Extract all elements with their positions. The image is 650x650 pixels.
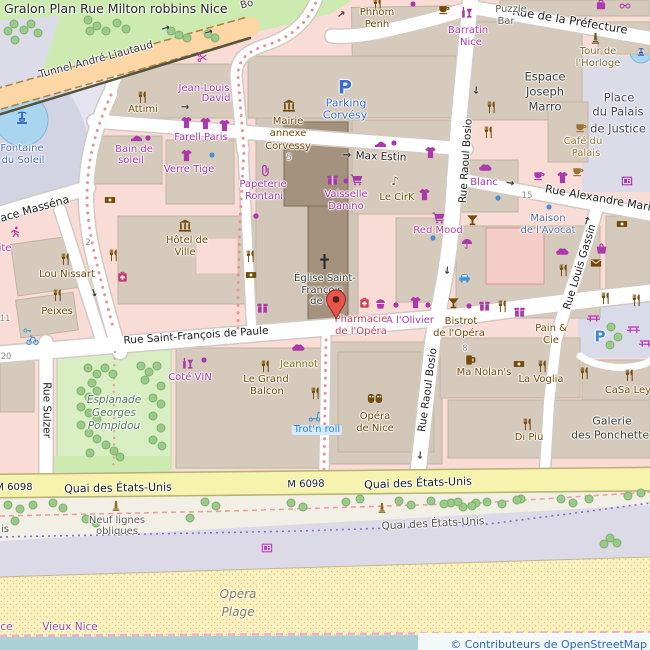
optician-icon: [619, 0, 631, 12]
street-rue-alexandre-mari: Rue Alexandre Mari: [544, 183, 650, 212]
monument-icon: [110, 500, 122, 512]
poi-verre-tige: Verre Tige: [164, 165, 214, 175]
poi-galerie-ponchettes-1: Galerie: [592, 416, 631, 427]
townhall-icon: [178, 219, 192, 233]
dot-icon: [209, 152, 215, 158]
clothes-icon: [424, 146, 437, 159]
osm-attribution-link[interactable]: © Contributeurs de OpenStreetMap: [450, 638, 650, 650]
oneway-arrow-icon: →: [181, 103, 190, 113]
poi-puzzle-bar-2: Bar: [497, 17, 514, 27]
tree-icon: [149, 436, 158, 445]
place-palais-justice-1: Place: [604, 92, 635, 104]
poi-maison-avocat-1: Maison: [530, 214, 565, 224]
poi-bistrot-opera-1: Bistrot: [445, 317, 478, 327]
dot-icon: [410, 1, 416, 7]
poi-trot-n-roll: Trot'n roll: [292, 425, 342, 435]
poi-pharmacie-opera-2: de l'Opéra: [335, 327, 387, 337]
poi-jean-louis-david-2: David: [202, 94, 231, 104]
poi-attimi: Attimi: [128, 105, 158, 115]
tree-icon: [93, 435, 102, 444]
picnic-icon: [587, 312, 600, 325]
place-palais-justice-3: de Justice: [590, 123, 646, 135]
cafe-icon: [533, 169, 546, 182]
tree-icon: [606, 341, 615, 350]
poi-opera-nice-2: de Nice: [356, 424, 394, 434]
clothes-icon: [418, 188, 431, 201]
tree-icon: [86, 27, 95, 36]
poi-parking-corvesy-2: Corvésy: [323, 110, 367, 121]
restaurant-icon: [107, 249, 120, 262]
tree-icon: [16, 505, 25, 514]
tree-icon: [454, 498, 463, 507]
bank-icon: [513, 358, 525, 370]
poi-barratin-nice-2: Nice: [460, 38, 482, 48]
tree-icon: [498, 500, 507, 509]
poi-red-mood: Red Mood: [413, 226, 462, 236]
tree-icon: [585, 495, 594, 504]
cross-icon: [317, 254, 332, 269]
tree-icon: [157, 424, 166, 433]
tree-icon: [86, 449, 95, 458]
poi-la-voglia: La Voglia: [518, 375, 563, 385]
monument-icon: [376, 502, 388, 514]
poi-jeannot: Jeannot: [280, 360, 318, 370]
clothes-icon: [218, 119, 231, 132]
restaurant-icon: [557, 264, 570, 277]
poi-papeterie-rontani-2: Rontani: [245, 192, 283, 202]
artwork-icon: [261, 542, 273, 554]
monument-icon: [589, 32, 602, 45]
park-esplanade-2: Georges: [92, 408, 136, 419]
oneway-arrow-icon: →: [87, 287, 99, 298]
tree-icon: [157, 382, 166, 391]
poi-le-cirk: Le CirK: [379, 193, 414, 203]
poi-parking-corvesy-1: Parking: [326, 98, 367, 109]
tree-icon: [287, 499, 296, 508]
oneway-arrow-icon: →: [505, 178, 515, 189]
tree-icon: [637, 489, 646, 498]
beach-opera-plage-1: Opera: [220, 588, 257, 600]
cafe-icon: [575, 121, 588, 134]
housenumber-5: 5: [286, 154, 291, 163]
housenumber-20: 20: [1, 353, 12, 362]
shoes-icon: [374, 136, 387, 149]
poi-bain-de-soleil-1: Bain de: [115, 145, 153, 155]
sports-icon: [9, 226, 21, 238]
tree-icon: [49, 499, 58, 508]
poi-vaisselle-danino-2: Danino: [328, 202, 363, 212]
gift-icon: [513, 305, 526, 318]
luggage-icon: [595, 0, 607, 11]
tree-icon: [141, 376, 150, 385]
poi-neuf-lignes-2: obliques: [96, 527, 138, 537]
tree-icon: [158, 442, 167, 451]
oneway-arrow-icon: →: [470, 85, 481, 94]
tree-icon: [109, 370, 118, 379]
clothes-icon: [409, 296, 422, 309]
restaurant-icon: [623, 369, 636, 382]
pharmacy-icon: [116, 270, 129, 283]
clothes-icon: [180, 149, 193, 162]
tree-icon: [342, 498, 351, 507]
poi-peixes: Peixes: [41, 307, 73, 317]
bar-icon: [181, 357, 194, 370]
tree-icon: [468, 502, 477, 511]
poi-farell-paris: Farell Paris: [174, 133, 228, 143]
tree-icon: [299, 503, 308, 512]
dot-icon: [391, 140, 397, 146]
tree-icon: [186, 514, 195, 523]
tree-icon: [201, 498, 210, 507]
cocktail-icon: [447, 296, 460, 309]
poi-casa-leya: CaSa Leya: [605, 386, 650, 396]
tree-icon: [11, 36, 20, 45]
tree-icon: [84, 16, 93, 25]
tree-icon: [11, 517, 20, 526]
poi-mairie-3: Corvessy: [265, 142, 311, 152]
tree-icon: [149, 412, 158, 421]
poi-eglise-2: François: [301, 286, 342, 296]
dot-icon: [343, 178, 349, 184]
poi-vaisselle-danino-1: Vaisselle: [324, 190, 367, 200]
tree-icon: [395, 497, 404, 506]
pharmacy-icon: [358, 296, 371, 309]
tree-icon: [513, 496, 522, 505]
tree-icon: [113, 19, 122, 28]
street-quai-etats-unis-west: Quai des États-Unis: [64, 482, 172, 495]
dot-icon: [546, 204, 552, 210]
dot-icon: [425, 302, 431, 308]
tree-icon: [4, 27, 13, 36]
restaurant-icon: [51, 289, 64, 302]
theatre-icon: [367, 391, 383, 407]
poi-grand-balcon-1: Le Grand: [243, 375, 288, 385]
supermarket-icon: [350, 173, 363, 186]
scooter-icon: [308, 409, 321, 422]
place-espace-marro-2: Joseph: [526, 86, 564, 98]
restaurant-icon: [309, 387, 322, 400]
poi-grand-balcon-2: Balcon: [250, 387, 284, 397]
townhall-icon: [282, 99, 296, 113]
poi-lou-nissart: Lou Nissart: [39, 270, 95, 280]
tree-icon: [600, 540, 609, 549]
street-rue-saint-francois-de-paule: Rue Saint-François de Paule: [123, 326, 269, 347]
oneway-arrow-icon: →: [336, 8, 349, 21]
attribution-bar: © Contributeurs de OpenStreetMap: [418, 633, 650, 650]
cafe-icon: [438, 3, 451, 16]
tree-icon: [122, 25, 131, 34]
park-esplanade-3: Pompidou: [88, 421, 140, 432]
dot-icon: [201, 357, 207, 363]
tree-icon: [407, 501, 416, 510]
poi-mairie-2: annexe: [270, 129, 307, 139]
restaurant-icon: [521, 418, 534, 431]
beach-opera-plage-2: Plage: [222, 606, 255, 618]
gift-icon: [326, 173, 339, 186]
basket-icon: [595, 242, 608, 255]
dot-icon: [466, 303, 472, 309]
tree-icon: [93, 370, 102, 379]
poi-bistrot-opera-2: de l'Opéra: [433, 329, 485, 339]
tree-icon: [157, 400, 166, 409]
poi-cafe-du-palais-1: Café du: [564, 137, 603, 147]
restaurant-icon: [136, 91, 149, 104]
shield-m6098-east: M 6098: [287, 480, 324, 491]
tree-icon: [29, 501, 38, 510]
tree-icon: [212, 502, 221, 511]
shield-m6098-west: M 6098: [0, 483, 33, 493]
cafe-icon: [572, 165, 585, 178]
poi-pharmacie-opera-1: Pharmacie: [335, 315, 388, 325]
poi-barratin-nice-1: Barratin: [448, 26, 488, 36]
street-tunnel-andre-liautaud: Tunnel André Liautaud: [38, 40, 154, 81]
tree-icon: [613, 539, 622, 548]
park-esplanade-1: Esplanade: [87, 395, 141, 406]
oneway-arrow-icon: →: [343, 151, 352, 161]
poi-papeterie-rontani-1: Papeterie: [239, 180, 286, 190]
tree-icon: [614, 333, 623, 342]
street-quai-etats-unis-east: Quai des États-Unis: [364, 476, 472, 491]
gift-icon: [256, 301, 269, 314]
tree-icon: [557, 495, 566, 504]
tree-icon: [624, 492, 633, 501]
tree-icon: [356, 495, 365, 504]
restaurant-icon: [485, 101, 498, 114]
key-icon: [23, 326, 32, 335]
confectionery-icon: [374, 297, 387, 310]
restaurant-icon: [496, 300, 509, 313]
water-fontaine-soleil-1: Fontaine: [0, 144, 43, 154]
oneway-arrow-icon: →: [441, 265, 452, 274]
picnic-icon: [627, 323, 640, 336]
poi-ma-nolans: Ma Nolan's: [457, 368, 512, 378]
street-rue-raoul-bosio-north: Rue Raoul Bosio: [458, 118, 474, 203]
dot-icon: [495, 195, 501, 201]
tree-icon: [27, 20, 36, 29]
poi-pain-cie-1: Pain &: [535, 324, 567, 334]
restaurant-icon: [59, 253, 72, 266]
stationery-icon: [260, 164, 273, 177]
street-rue-de-la-prefecture: Rue de la Préfecture: [512, 6, 629, 37]
poi-hotel-de-ville-1: Hôtel de: [166, 236, 208, 246]
restaurant-icon: [599, 292, 612, 305]
water-fontaine-soleil-2: du Soleil: [2, 156, 45, 166]
cocktail-icon: [466, 213, 479, 226]
dot-icon: [253, 213, 259, 219]
place-partial-ice: ice: [0, 622, 13, 633]
poi-pain-cie-2: Cie: [543, 336, 559, 346]
gift-icon: [478, 299, 491, 312]
taxi-icon: [458, 271, 471, 284]
restaurant-icon: [536, 360, 549, 373]
restaurant-icon: [244, 250, 257, 263]
poi-phnom-penh-2: Penh: [365, 20, 390, 30]
poi-opera-nice-1: Opéra: [360, 412, 391, 422]
bakery-icon: [292, 341, 305, 354]
street-bo-partial: Bo: [239, 0, 254, 12]
post-icon: [590, 257, 602, 269]
poi-cafe-du-palais-2: Palais: [572, 149, 601, 159]
hairdresser-icon: [197, 52, 208, 63]
tree-icon: [116, 453, 125, 462]
tree-icon: [77, 421, 86, 430]
bank-icon: [616, 218, 628, 230]
picnic-icon: [639, 337, 650, 350]
street-quai-etats-unis-promenade: Quai des États-Unis: [381, 516, 484, 532]
place-espace-marro-3: Marro: [528, 101, 561, 113]
poi-maison-avocat-2: de l'Avocat: [520, 226, 575, 236]
parking-p-icon: P: [595, 330, 606, 345]
place-palais-justice-2: du Palais: [592, 106, 643, 118]
housenumber-15: 15: [522, 192, 533, 201]
dot-icon: [393, 302, 399, 308]
restaurant-icon: [482, 126, 495, 139]
restaurant-icon: [259, 360, 272, 373]
poi-galerie-ponchettes-2: des Ponchettes: [571, 430, 650, 441]
map-overlay: Tunnel André LiautaudRue de la Préfectur…: [0, 0, 650, 650]
restaurant-icon: [630, 294, 643, 307]
housenumber-8: 8: [462, 345, 467, 354]
poi-cote-vin: Coté VIN: [168, 373, 212, 383]
poi-partial-ite: ite: [0, 244, 11, 254]
poi-neuf-lignes-1: Neuf lignes: [89, 516, 145, 526]
tree-icon: [440, 500, 449, 509]
tree-icon: [153, 362, 162, 371]
clothes-icon: [199, 117, 212, 130]
poi-mairie-1: Mairie: [273, 117, 304, 127]
street-rue-raoul-bosio-south: Rue Raoul Bosio: [417, 347, 439, 432]
clothes-icon: [556, 171, 569, 184]
bank-icon: [104, 194, 116, 206]
oneway-arrow-icon: →: [414, 450, 425, 459]
tree-icon: [84, 364, 93, 373]
tree-icon: [59, 504, 68, 513]
fountain-icon: [14, 110, 30, 126]
restaurant-icon: [578, 367, 591, 380]
fountain-icon: [636, 47, 646, 57]
poi-phnom-penh-1: Phnom: [360, 8, 395, 18]
street-partial-is: is: [1, 525, 9, 535]
clothes-icon: [180, 116, 193, 129]
poi-eglise-3: de P: [310, 297, 332, 307]
street-place-massena: Place Masséna: [0, 194, 70, 227]
tree-icon: [4, 501, 13, 510]
music-note-icon: ♪: [391, 175, 399, 187]
street-rue-sulzer: Rue Sulzer: [41, 382, 52, 438]
poi-di-piu: Di Piu: [515, 433, 544, 443]
umbrella-icon: [461, 238, 473, 250]
bakery-icon: [556, 245, 569, 258]
poi-blanc: Blanc: [470, 178, 498, 188]
poi-hotel-de-ville-2: Ville: [174, 248, 195, 258]
tree-icon: [183, 34, 192, 43]
supermarket-icon: [432, 211, 445, 224]
poi-eglise-1: Église Saint-: [294, 274, 356, 284]
tree-icon: [427, 497, 436, 506]
tree-icon: [569, 499, 578, 508]
tree-icon: [483, 498, 492, 507]
bank-icon: [245, 269, 257, 281]
housenumber-2: 2: [85, 239, 90, 248]
pub-icon: [464, 353, 477, 366]
poi-tour-horloge-2: l'Horloge: [576, 59, 621, 69]
page-title: Gralon Plan Rue Milton robbins Nice: [4, 1, 228, 16]
place-vieux-nice: Vieux Nice: [42, 622, 98, 633]
poi-bain-de-soleil-2: soleil: [118, 156, 144, 166]
tree-icon: [607, 323, 616, 332]
tree-icon: [102, 27, 111, 36]
poi-tour-horloge-1: Tour de: [580, 47, 617, 57]
bakery-icon: [479, 161, 492, 174]
bar-icon: [460, 6, 473, 19]
shoes-icon: [130, 130, 143, 143]
poi-a-lolivier: A l'Olivier: [386, 316, 434, 326]
dot-icon: [145, 135, 151, 141]
place-espace-marro-1: Espace: [524, 71, 565, 83]
artwork-icon: [621, 175, 633, 187]
housenumber-11: 11: [0, 315, 10, 324]
parking-p-icon: P: [338, 79, 352, 98]
tree-icon: [34, 29, 43, 38]
map: Tunnel André LiautaudRue de la Préfectur…: [0, 0, 650, 650]
street-max-estin: Max Estin: [355, 151, 406, 163]
poi-puzzle-bar-1: Puzzle: [495, 5, 527, 15]
